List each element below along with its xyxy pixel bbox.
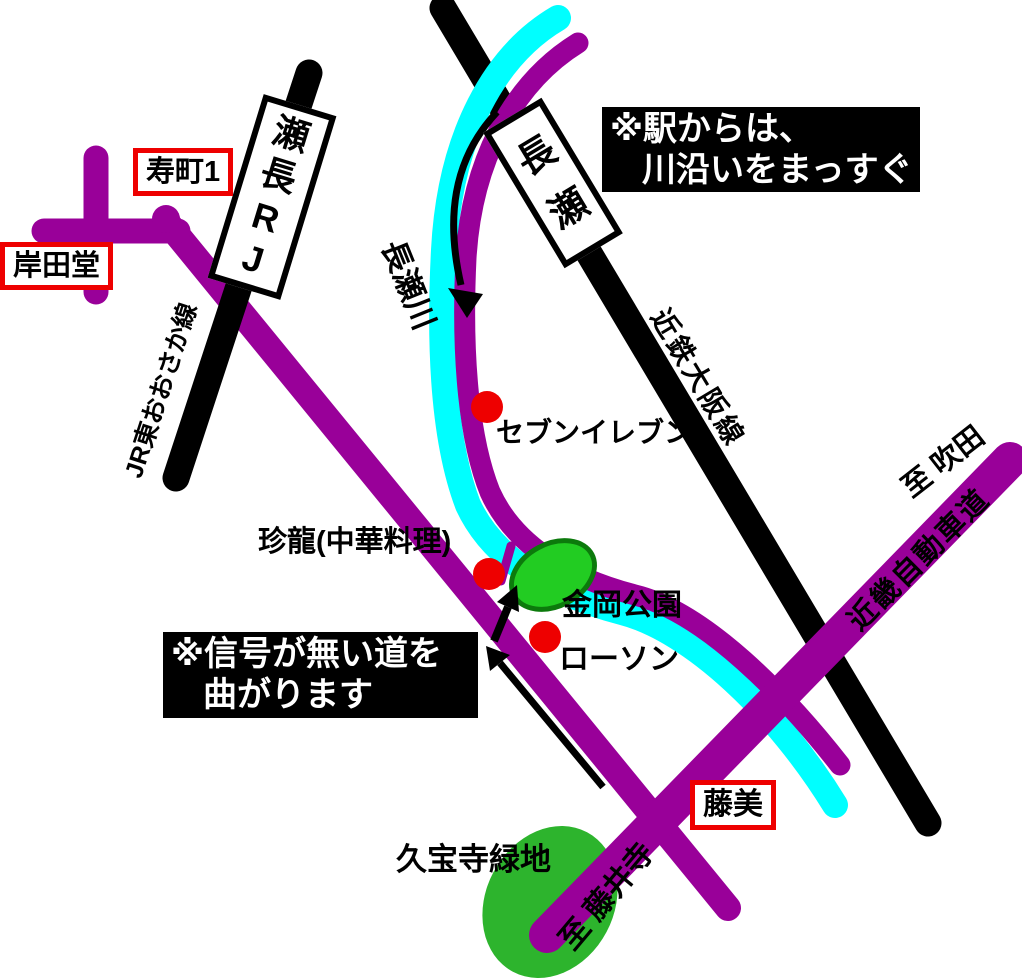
chinryu-marker [473, 558, 505, 590]
station-name-char: 長 [511, 131, 563, 183]
kanaoka-park-label: 金岡公園 [562, 589, 682, 622]
station-name-char: 長 [256, 154, 301, 199]
station-name-char: R [248, 197, 283, 239]
lawson-marker [529, 621, 561, 653]
seven-eleven-label: セブンイレブン [496, 418, 692, 449]
from-station-note-line1: ※駅からは、 [610, 109, 912, 150]
from-station-note: ※駅からは、 川沿いをまっすぐ [602, 107, 920, 192]
station-name-char: 瀬 [543, 183, 595, 235]
turn-note-line1: ※信号が無い道を [171, 634, 470, 675]
turn-note-line2: 曲がります [171, 675, 470, 716]
kotobukicho-junction-dot [152, 205, 180, 233]
fujimi-label: 藤美 [690, 780, 776, 830]
turn-note: ※信号が無い道を 曲がります [163, 632, 478, 718]
kyuhoji-park-label: 久宝寺緑地 [396, 843, 551, 877]
station-name-char: J [238, 239, 268, 279]
from-station-note-line2: 川沿いをまっすぐ [610, 150, 912, 191]
station-name-char: 瀬 [268, 113, 313, 158]
lawson-label: ローソン [559, 643, 679, 676]
chinryu-label: 珍龍(中華料理) [258, 527, 451, 559]
kishidado-label: 岸田堂 [0, 242, 113, 290]
route-map: JR長瀬 長瀬 寿町1 岸田堂 藤美 セブンイレブン 珍龍(中華料理) 金岡公園… [0, 0, 1022, 979]
kotobukicho1-label: 寿町1 [133, 148, 233, 196]
